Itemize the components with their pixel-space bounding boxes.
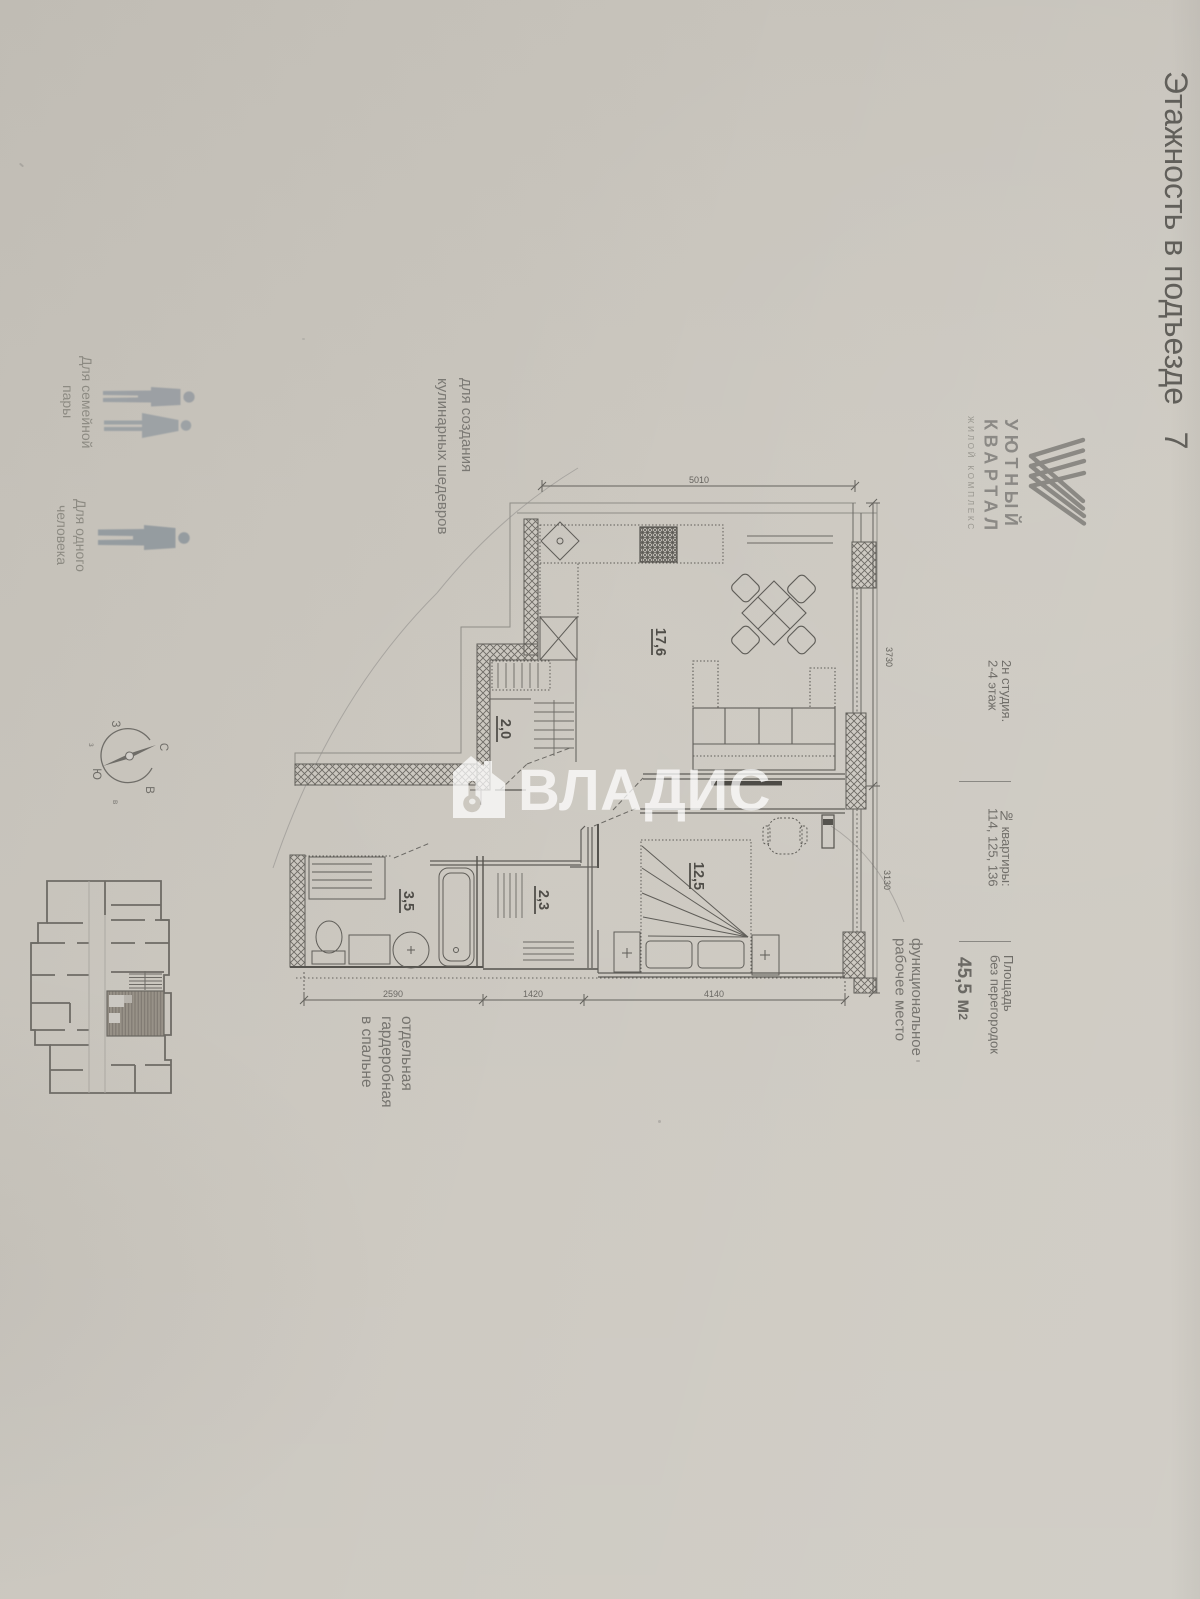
svg-text:2,3: 2,3 xyxy=(535,890,551,910)
svg-text:В: В xyxy=(143,786,155,794)
svg-text:1420: 1420 xyxy=(523,989,543,999)
svg-text:12,5: 12,5 xyxy=(690,862,706,890)
svg-text:С: С xyxy=(157,743,169,751)
svg-text:в: в xyxy=(111,800,120,804)
svg-text:2590: 2590 xyxy=(383,989,403,999)
svg-text:5010: 5010 xyxy=(689,475,709,485)
svg-text:17,6: 17,6 xyxy=(652,628,668,656)
svg-text:ВЛАДИС: ВЛАДИС xyxy=(518,758,771,822)
svg-text:З: З xyxy=(109,721,121,728)
svg-text:з: з xyxy=(87,743,96,747)
svg-text:2,0: 2,0 xyxy=(497,719,513,739)
svg-text:3130: 3130 xyxy=(882,870,892,890)
svg-text:3,5: 3,5 xyxy=(400,891,416,911)
svg-text:Ю: Ю xyxy=(90,768,102,780)
svg-text:3730: 3730 xyxy=(884,647,894,667)
svg-text:4140: 4140 xyxy=(704,989,724,999)
